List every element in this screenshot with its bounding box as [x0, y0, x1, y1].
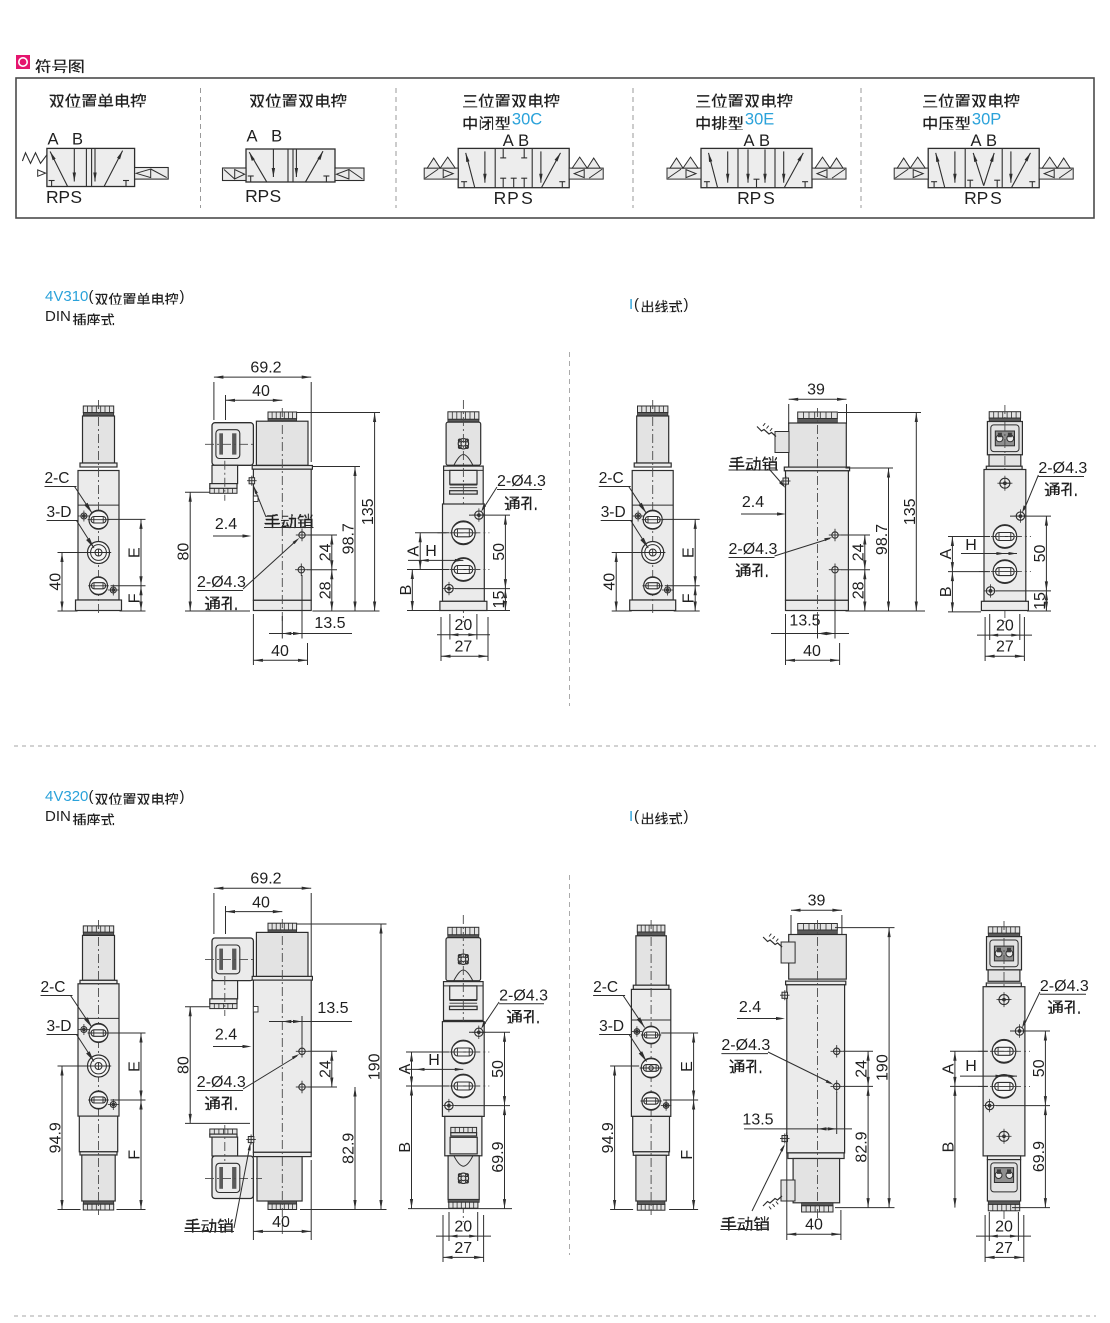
svg-text:): ): [684, 296, 689, 313]
svg-text:A: A: [397, 1063, 414, 1074]
svg-text:A: A: [47, 130, 58, 148]
svg-text:(: (: [89, 788, 94, 805]
svg-text:39: 39: [808, 893, 826, 910]
svg-text:27: 27: [995, 1240, 1013, 1257]
svg-text:F: F: [127, 1150, 144, 1160]
svg-text:P: P: [977, 188, 989, 208]
svg-text:H: H: [425, 543, 437, 560]
svg-text:S: S: [990, 188, 1002, 208]
svg-text:A: A: [940, 1063, 957, 1074]
svg-text:B: B: [271, 128, 282, 146]
svg-text:2.4: 2.4: [739, 999, 761, 1016]
svg-text:50: 50: [1032, 545, 1049, 563]
svg-text:98.7: 98.7: [874, 524, 891, 555]
svg-text:13.5: 13.5: [314, 615, 345, 632]
svg-text:2-Ø4.3: 2-Ø4.3: [1038, 460, 1087, 477]
svg-text:69.9: 69.9: [1031, 1141, 1048, 1172]
svg-text:40: 40: [805, 1217, 823, 1234]
svg-text:F: F: [681, 593, 698, 603]
svg-text:190: 190: [367, 1053, 384, 1080]
svg-text:69.2: 69.2: [250, 360, 281, 377]
svg-text:3-D: 3-D: [47, 504, 72, 521]
svg-text:15: 15: [491, 591, 508, 609]
svg-text:27: 27: [455, 639, 473, 656]
svg-text:E: E: [681, 547, 698, 558]
svg-text:B: B: [397, 1142, 414, 1153]
svg-text:2-Ø4.3: 2-Ø4.3: [721, 1037, 770, 1054]
svg-text:15: 15: [1032, 592, 1049, 610]
svg-text:94.9: 94.9: [48, 1122, 65, 1153]
svg-text:B: B: [518, 132, 529, 150]
svg-text:I: I: [629, 808, 633, 825]
svg-text:2-C: 2-C: [599, 470, 624, 487]
svg-text:69.9: 69.9: [490, 1141, 507, 1172]
svg-text:27: 27: [454, 1240, 472, 1257]
svg-text:S: S: [70, 187, 82, 207]
svg-text:H: H: [965, 537, 977, 554]
svg-text:H: H: [428, 1052, 440, 1069]
svg-text:80: 80: [176, 543, 193, 561]
svg-text:13.5: 13.5: [789, 613, 820, 630]
svg-text:A: A: [406, 545, 423, 556]
svg-text:2.4: 2.4: [215, 1027, 237, 1044]
svg-text:E: E: [127, 1061, 144, 1072]
svg-text:I: I: [629, 296, 633, 313]
svg-text:2.4: 2.4: [215, 516, 237, 533]
svg-text:2-C: 2-C: [45, 470, 70, 487]
svg-text:20: 20: [996, 618, 1014, 635]
svg-text:F: F: [127, 593, 144, 603]
svg-text:30C: 30C: [512, 111, 542, 129]
svg-text:A: A: [970, 132, 981, 150]
svg-text:A: A: [743, 132, 754, 150]
svg-text:40: 40: [252, 894, 270, 911]
svg-text:28: 28: [850, 581, 867, 599]
svg-text:S: S: [269, 186, 281, 206]
svg-text:3-D: 3-D: [599, 1018, 624, 1035]
svg-text:20: 20: [455, 617, 473, 634]
svg-text:50: 50: [491, 543, 508, 561]
svg-text:2-Ø4.3: 2-Ø4.3: [729, 541, 778, 558]
svg-text:13.5: 13.5: [317, 1000, 348, 1017]
svg-text:80: 80: [176, 1056, 193, 1074]
svg-text:3-D: 3-D: [47, 1018, 72, 1035]
svg-text:40: 40: [803, 643, 821, 660]
svg-text:R: R: [46, 187, 59, 207]
svg-text:13.5: 13.5: [742, 1112, 773, 1129]
svg-text:82.9: 82.9: [854, 1131, 871, 1162]
svg-text:2-Ø4.3: 2-Ø4.3: [497, 473, 546, 490]
svg-text:B: B: [398, 585, 415, 596]
svg-text:98.7: 98.7: [341, 523, 358, 554]
svg-text:82.9: 82.9: [340, 1133, 357, 1164]
svg-text:2-C: 2-C: [593, 979, 618, 996]
svg-text:R: R: [494, 188, 507, 208]
svg-text:B: B: [938, 586, 955, 597]
svg-text:B: B: [986, 132, 997, 150]
svg-text:E: E: [679, 1061, 696, 1072]
svg-text:2-C: 2-C: [41, 979, 66, 996]
svg-text:40: 40: [48, 573, 65, 591]
svg-text:28: 28: [317, 581, 334, 599]
svg-text:24: 24: [317, 543, 334, 561]
svg-text:B: B: [940, 1142, 957, 1153]
svg-text:40: 40: [271, 643, 289, 660]
svg-text:24: 24: [317, 1060, 334, 1078]
svg-text:190: 190: [875, 1054, 892, 1081]
svg-text:H: H: [965, 1058, 977, 1075]
svg-text:2-Ø4.3: 2-Ø4.3: [499, 987, 548, 1004]
svg-text:39: 39: [807, 382, 825, 399]
svg-text:A: A: [503, 132, 514, 150]
svg-text:20: 20: [454, 1219, 472, 1236]
svg-text:2.4: 2.4: [742, 494, 764, 511]
svg-text:P: P: [750, 188, 762, 208]
svg-text:S: S: [521, 188, 533, 208]
svg-text:(: (: [634, 296, 639, 313]
svg-text:4V320: 4V320: [45, 788, 88, 805]
svg-text:E: E: [127, 547, 144, 558]
svg-text:94.9: 94.9: [600, 1122, 617, 1153]
svg-text:): ): [684, 808, 689, 825]
svg-text:): ): [180, 288, 185, 305]
svg-text:B: B: [759, 132, 770, 150]
svg-text:R: R: [245, 186, 258, 206]
svg-text:P: P: [507, 188, 519, 208]
svg-text:DIN: DIN: [45, 808, 71, 825]
svg-text:30P: 30P: [972, 111, 1001, 129]
svg-text:135: 135: [902, 498, 919, 525]
svg-text:30E: 30E: [745, 111, 774, 129]
svg-text:24: 24: [854, 1060, 871, 1078]
svg-text:(: (: [634, 808, 639, 825]
svg-text:69.2: 69.2: [250, 871, 281, 888]
svg-text:): ): [180, 788, 185, 805]
svg-text:S: S: [763, 188, 775, 208]
svg-text:B: B: [72, 130, 83, 148]
svg-text:24: 24: [850, 543, 867, 561]
svg-text:27: 27: [996, 639, 1014, 656]
svg-text:2-Ø4.3: 2-Ø4.3: [1040, 978, 1089, 995]
svg-text:40: 40: [602, 573, 619, 591]
svg-text:40: 40: [272, 1214, 290, 1231]
svg-text:50: 50: [490, 1060, 507, 1078]
svg-text:2-Ø4.3: 2-Ø4.3: [197, 574, 246, 591]
svg-text:DIN: DIN: [45, 308, 71, 325]
svg-text:2-Ø4.3: 2-Ø4.3: [197, 1074, 246, 1091]
svg-text:A: A: [246, 128, 257, 146]
svg-text:3-D: 3-D: [601, 504, 626, 521]
svg-text:20: 20: [995, 1219, 1013, 1236]
svg-text:4V310: 4V310: [45, 288, 88, 305]
svg-text:F: F: [679, 1150, 696, 1160]
svg-text:R: R: [964, 188, 977, 208]
svg-text:(: (: [89, 288, 94, 305]
svg-text:135: 135: [360, 498, 377, 525]
svg-text:R: R: [737, 188, 750, 208]
svg-text:P: P: [257, 186, 269, 206]
svg-text:A: A: [938, 548, 955, 559]
svg-text:P: P: [58, 187, 70, 207]
svg-text:50: 50: [1031, 1059, 1048, 1077]
svg-text:40: 40: [252, 383, 270, 400]
